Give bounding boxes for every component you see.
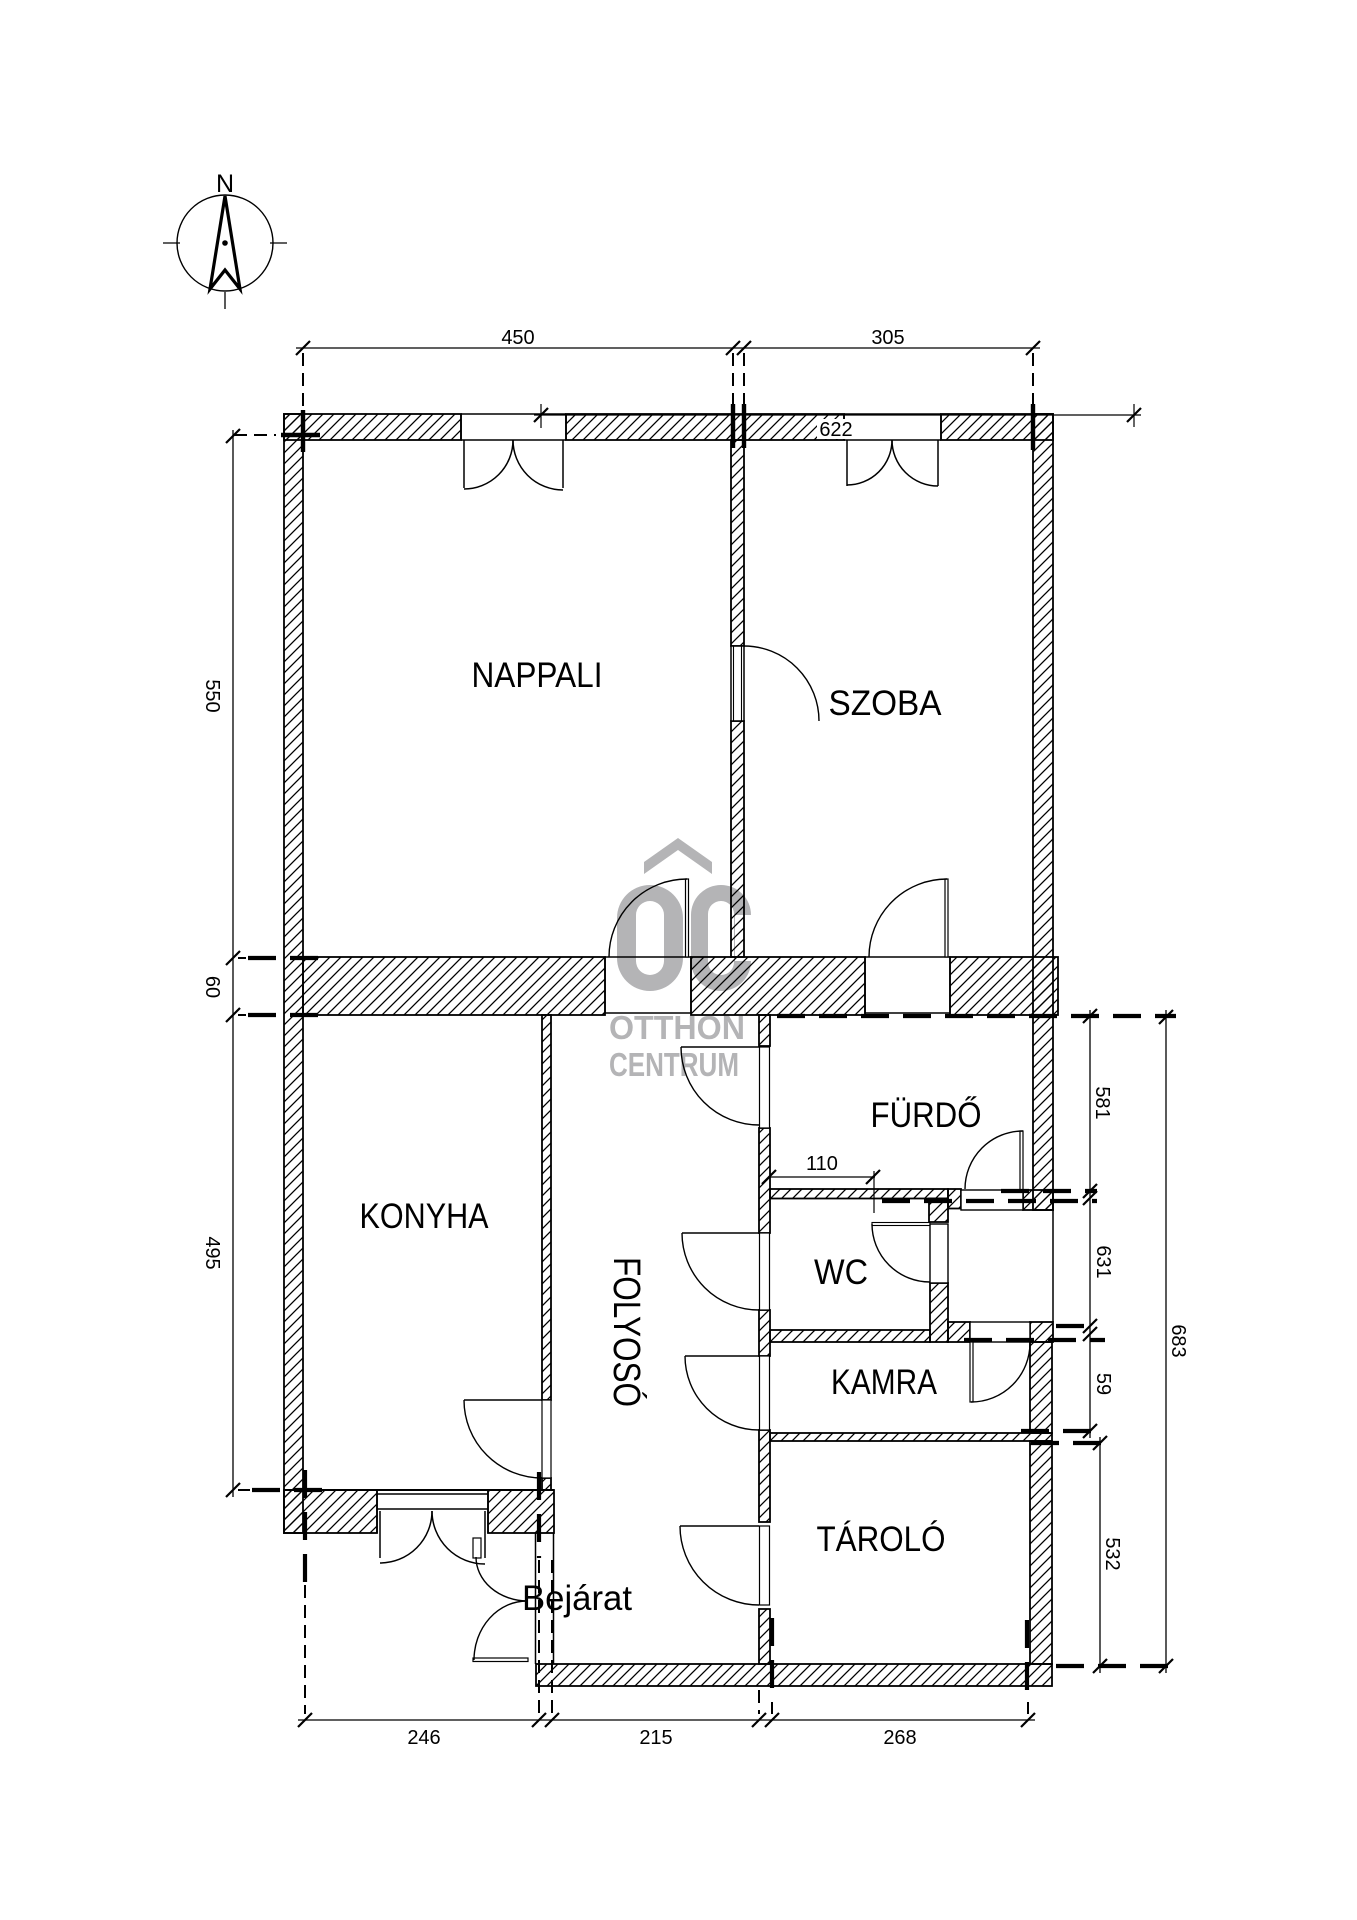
- svg-text:215: 215: [639, 1727, 672, 1749]
- svg-text:NAPPALI: NAPPALI: [472, 656, 603, 695]
- svg-text:TÁROLÓ: TÁROLÓ: [817, 1520, 946, 1559]
- svg-text:SZOBA: SZOBA: [829, 684, 943, 723]
- svg-text:59: 59: [1092, 1373, 1114, 1395]
- svg-text:246: 246: [407, 1727, 440, 1749]
- svg-text:622: 622: [819, 419, 852, 441]
- svg-text:268: 268: [883, 1727, 916, 1749]
- svg-text:KONYHA: KONYHA: [360, 1197, 490, 1236]
- svg-text:60: 60: [201, 976, 223, 998]
- svg-text:450: 450: [501, 327, 534, 349]
- svg-text:683: 683: [1167, 1324, 1189, 1357]
- svg-text:110: 110: [806, 1153, 838, 1175]
- svg-text:FOLYOSÓ: FOLYOSÓ: [605, 1257, 648, 1407]
- svg-text:N: N: [216, 170, 234, 198]
- svg-text:305: 305: [871, 327, 904, 349]
- svg-text:FÜRDŐ: FÜRDŐ: [871, 1096, 982, 1135]
- svg-text:KAMRA: KAMRA: [831, 1363, 938, 1402]
- svg-text:532: 532: [1101, 1537, 1123, 1570]
- svg-text:631: 631: [1092, 1245, 1114, 1278]
- svg-text:550: 550: [201, 679, 223, 712]
- svg-text:581: 581: [1091, 1086, 1113, 1119]
- svg-text:495: 495: [201, 1236, 223, 1269]
- svg-text:WC: WC: [814, 1253, 868, 1292]
- svg-text:CENTRUM: CENTRUM: [609, 1046, 739, 1083]
